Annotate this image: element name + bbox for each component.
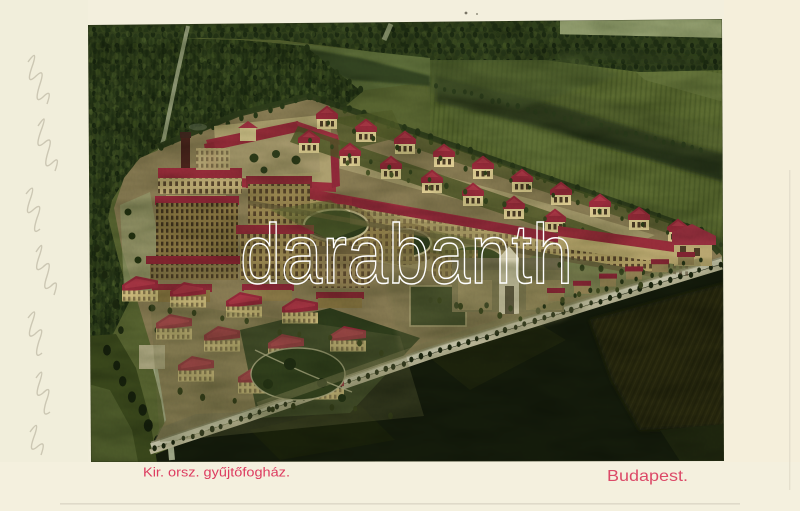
svg-text:Kir. orsz. gyűjtőfogház.: Kir. orsz. gyűjtőfogház. bbox=[143, 465, 290, 480]
svg-text:Budapest.: Budapest. bbox=[607, 468, 688, 485]
svg-text:darabanth: darabanth bbox=[240, 207, 573, 301]
